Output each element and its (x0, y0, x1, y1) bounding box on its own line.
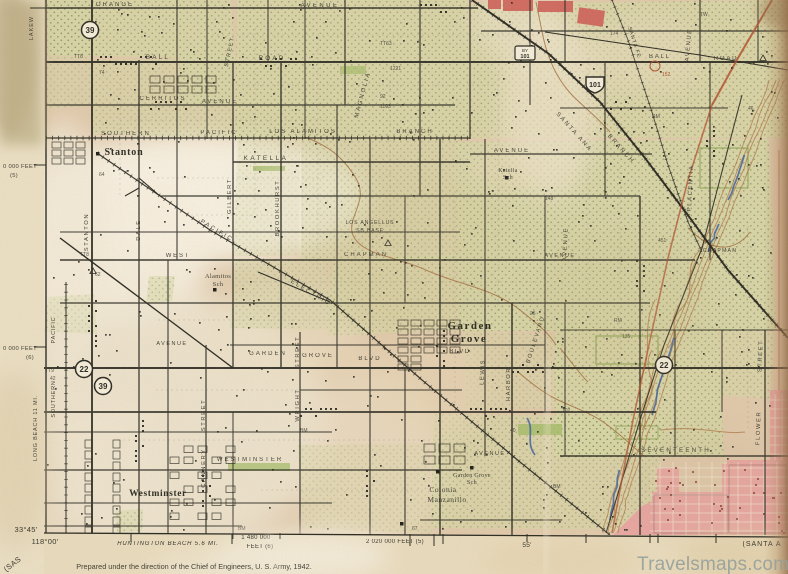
svg-text:Travelsmaps.com: Travelsmaps.com (637, 554, 788, 574)
